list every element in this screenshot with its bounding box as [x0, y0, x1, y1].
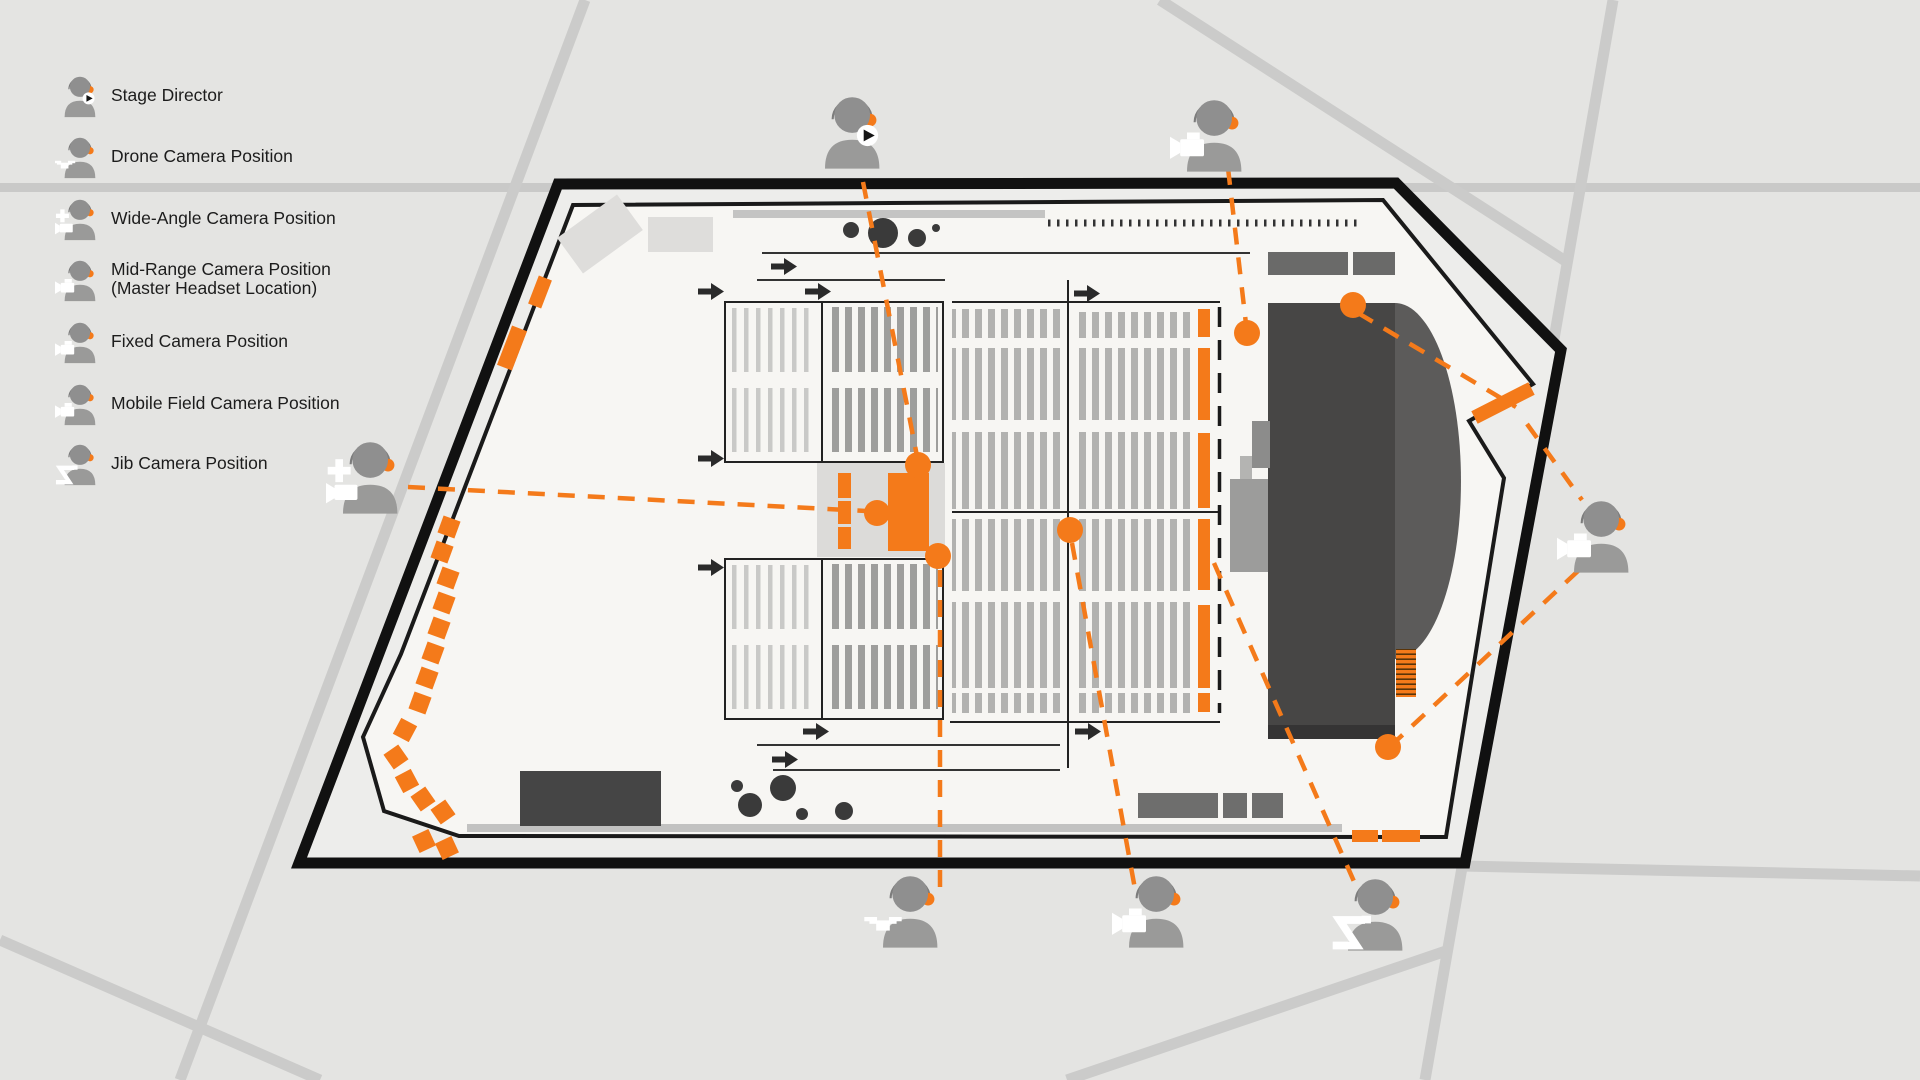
node-stage-front [1234, 320, 1260, 346]
legend-label: Stage Director [111, 86, 223, 105]
wide-angle-camera-icon [55, 194, 103, 242]
legend-label: Wide-Angle Camera Position [111, 209, 336, 228]
mid-range-camera-icon [55, 255, 103, 303]
control-box-dark [520, 771, 661, 826]
venue-camera-plan: Stage Director Drone Camera Position Wid… [0, 0, 1920, 1080]
legend-label: Mobile Field Camera Position [111, 394, 340, 413]
legend-item-jib: Jib Camera Position [55, 439, 268, 487]
legend-label: Jib Camera Position [111, 454, 268, 473]
legend-label: Mid-Range Camera Position(Master Headset… [111, 260, 331, 298]
stage-stairs-orange [1396, 649, 1416, 697]
mobile-field-camera-icon [55, 379, 103, 427]
master-headset-station [888, 473, 929, 551]
node-platform-top [905, 452, 931, 478]
legend: Stage Director Drone Camera Position Wid… [0, 0, 460, 560]
node-stage-top [1340, 292, 1366, 318]
legend-item-mid-range: Mid-Range Camera Position(Master Headset… [55, 255, 331, 303]
legend-item-mobile-field: Mobile Field Camera Position [55, 379, 340, 427]
stage-deck [1268, 303, 1395, 725]
gray-strip-top [733, 210, 1045, 218]
legend-item-fixed: Fixed Camera Position [55, 317, 288, 365]
gray-block [648, 217, 713, 252]
legend-label: Fixed Camera Position [111, 332, 288, 351]
seating-field-right [950, 280, 1220, 768]
legend-item-drone: Drone Camera Position [55, 132, 293, 180]
legend-label: Drone Camera Position [111, 147, 293, 166]
node-seating-aisle [1057, 517, 1083, 543]
jib-camera-icon [55, 439, 103, 487]
legend-item-wide-angle: Wide-Angle Camera Position [55, 194, 336, 242]
node-platform-bottom [925, 543, 951, 569]
node-platform-left [864, 500, 890, 526]
legend-item-stage-director: Stage Director [55, 71, 223, 119]
node-stage-bottom [1375, 734, 1401, 760]
drone-camera-icon [55, 132, 103, 180]
fixed-camera-icon [55, 317, 103, 365]
play-badge-icon [857, 125, 878, 146]
stage-director-icon [55, 71, 103, 119]
